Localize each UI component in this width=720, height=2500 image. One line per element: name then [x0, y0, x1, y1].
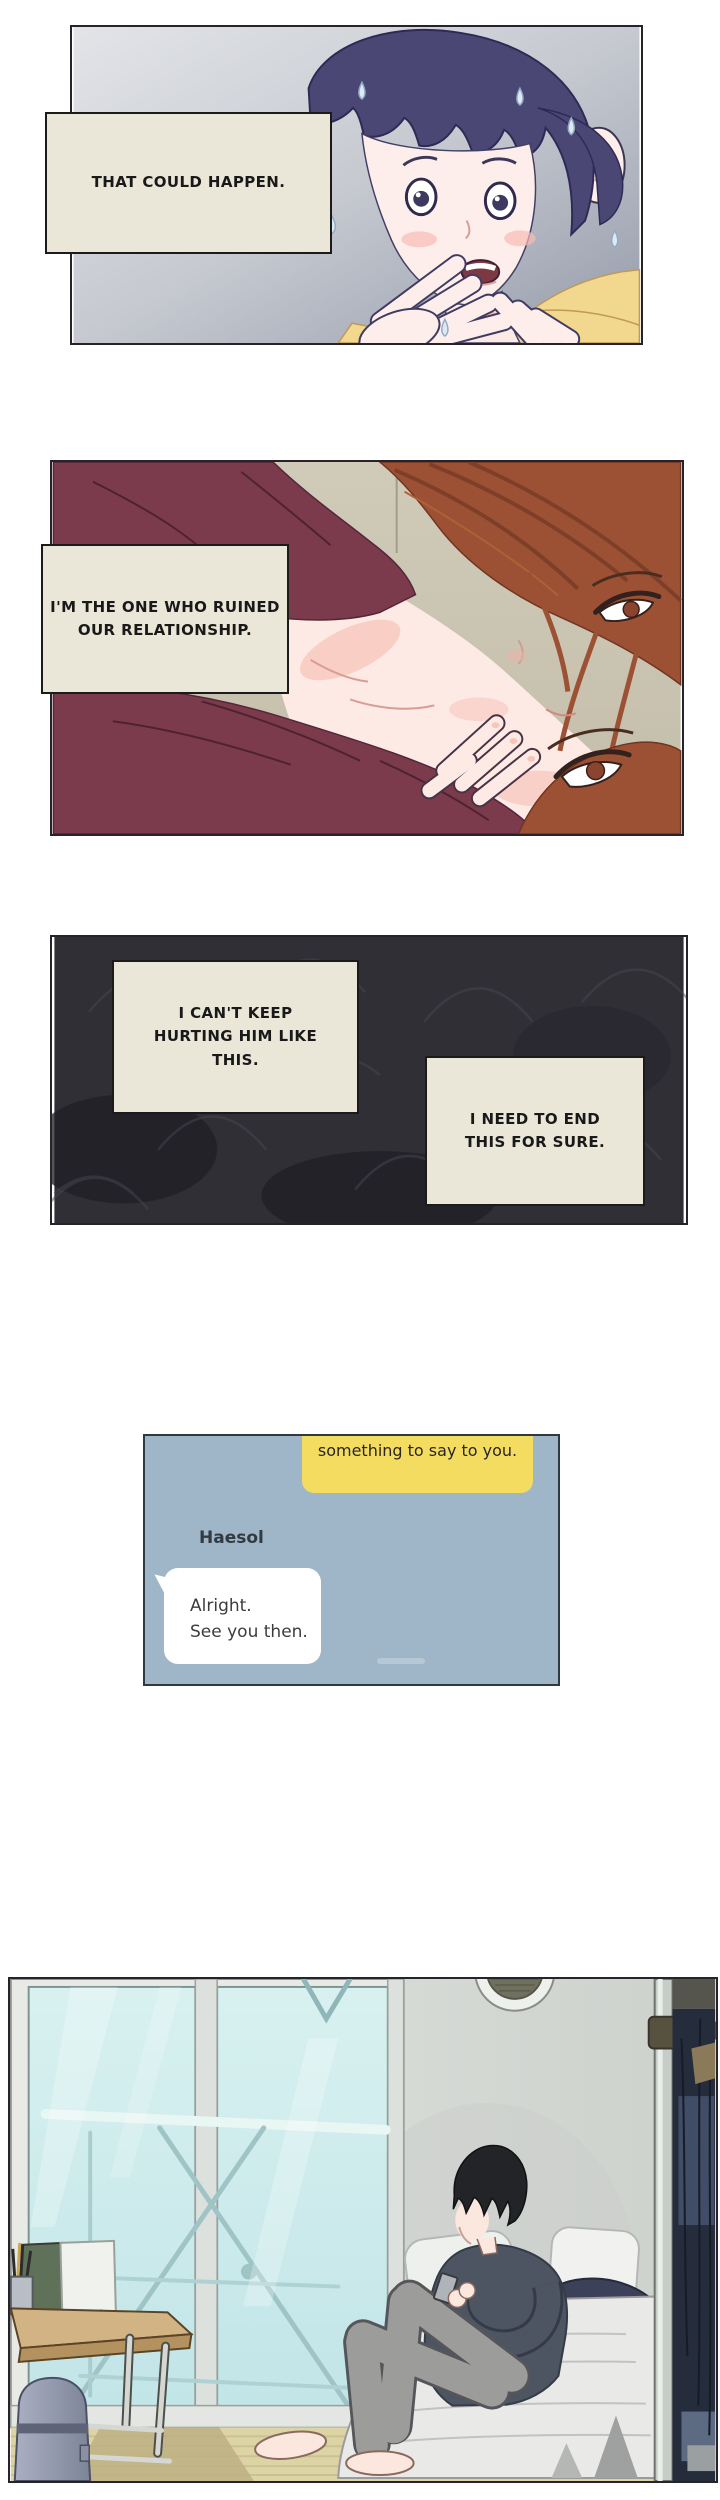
caption-panel-1: THAT COULD HAPPEN. — [45, 112, 332, 254]
sliding-glass-doors — [11, 1979, 404, 2427]
bare-foot-right — [346, 2451, 413, 2475]
chat-contact-name: Haesol — [199, 1528, 264, 1548]
panel-5-room-scene — [8, 1977, 718, 2483]
metal-pole — [655, 1979, 673, 2481]
caption-panel-2: I'M THE ONE WHO RUINED OUR RELATIONSHIP. — [41, 544, 289, 694]
top-right-bar — [673, 1979, 716, 2009]
caption-panel-3-left: I CAN'T KEEP HURTING HIM LIKE THIS. — [112, 960, 359, 1114]
chat-outgoing-bubble: something to say to you. — [302, 1434, 533, 1493]
panel-4-chat-screenshot: something to say to you. Haesol Alright.… — [143, 1434, 560, 1686]
caption-panel-3-right: I NEED TO END THIS FOR SURE. — [425, 1056, 645, 1206]
pencil-cup — [11, 2243, 33, 2314]
webtoon-page: THAT COULD HAPPEN. — [0, 0, 720, 2500]
trash-can — [15, 2378, 90, 2481]
hanging-clothes — [673, 2009, 716, 2481]
chat-faded-text-right — [377, 1658, 425, 1664]
chat-reply-bubble: Alright. See you then. — [164, 1568, 321, 1664]
white-panel — [60, 2241, 116, 2318]
panel-5-illustration — [10, 1979, 716, 2481]
chat-faded-text-left — [172, 1658, 212, 1664]
